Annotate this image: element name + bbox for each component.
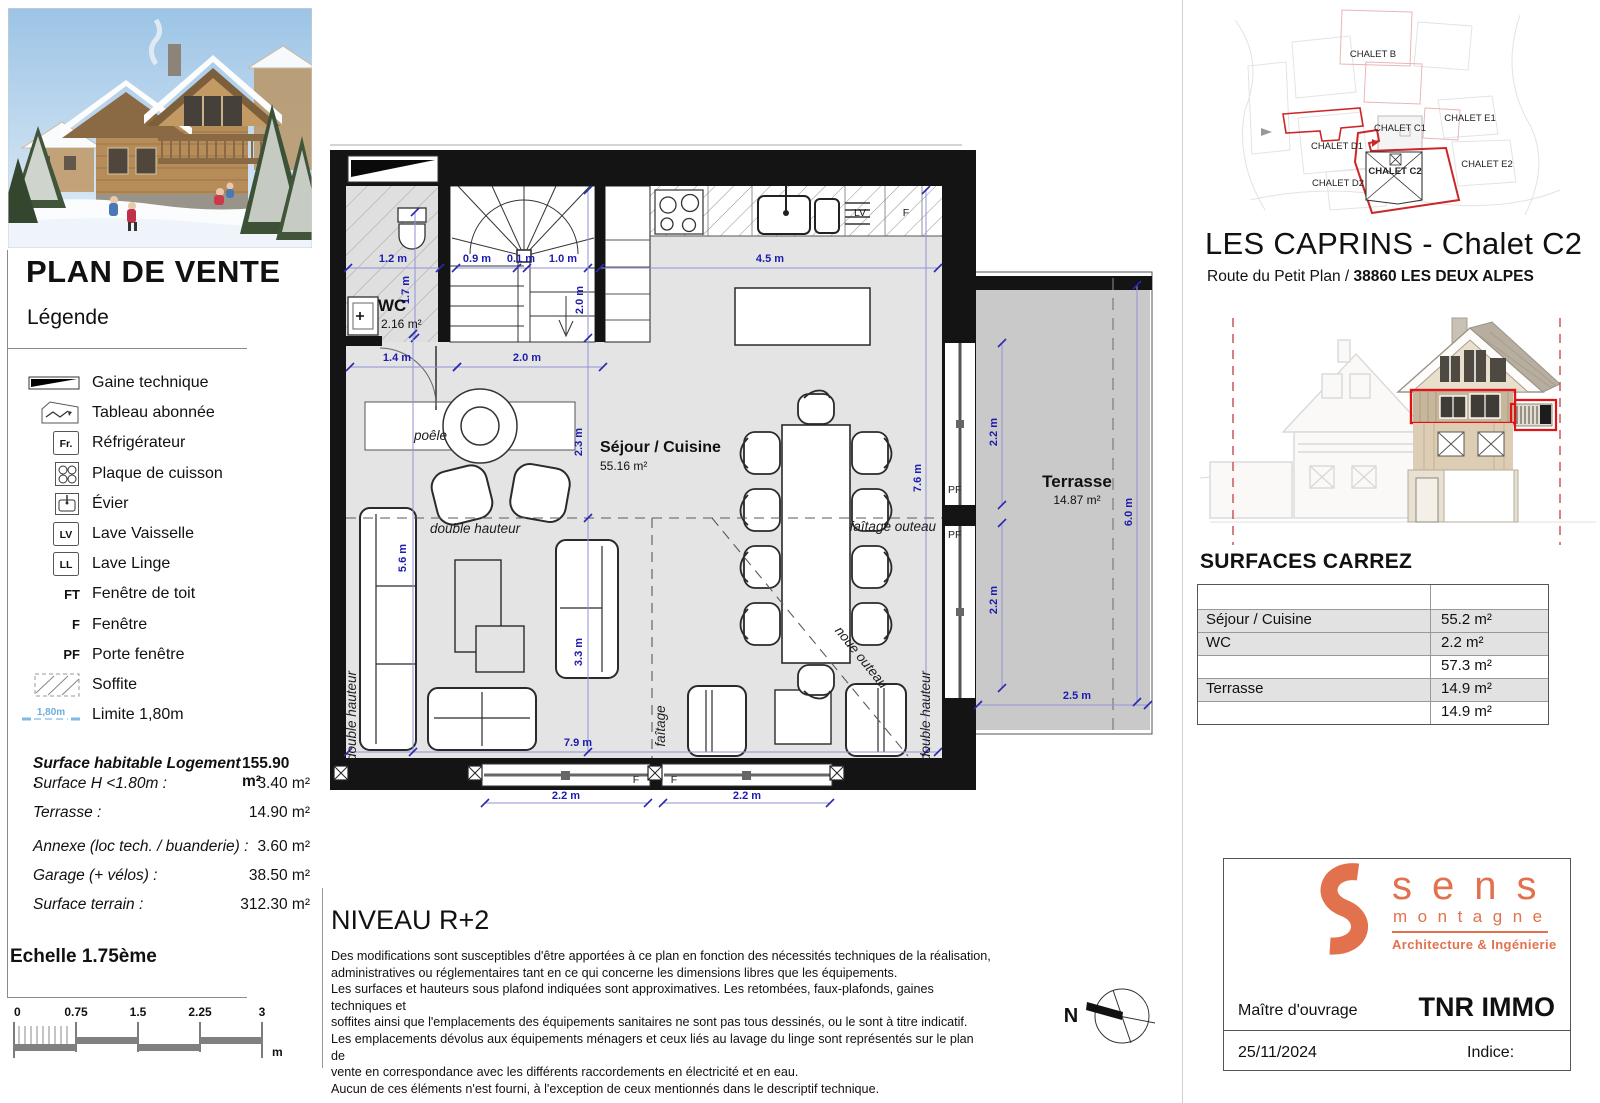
legend-item-label: Lave Linge — [92, 555, 170, 573]
scale-tick-label: 1.5 — [130, 1005, 147, 1019]
level-title: NIVEAU R+2 — [331, 905, 489, 936]
plan-annotation: LV — [854, 207, 866, 219]
legend-item-lave-linge: LLLave Linge — [0, 549, 300, 579]
dimension-label: 2.3 m — [573, 428, 585, 456]
legend-item-label: Soffite — [92, 676, 137, 694]
plan-annotation: double hauteur — [430, 521, 521, 536]
soffite-icon — [34, 673, 80, 697]
surface-value: 3.60 m² — [257, 838, 310, 856]
legend-item-label: Tableau abonnée — [92, 404, 215, 422]
carrez-room-label: Terrasse — [1198, 679, 1430, 701]
chalet-label: CHALET B — [1350, 49, 1396, 60]
room-name: Séjour / Cuisine — [600, 439, 721, 456]
compass-north-label: N — [1064, 1005, 1078, 1027]
address-city: 38860 LES DEUX ALPES — [1353, 268, 1533, 285]
legend-item-fen-tre-de-toit: FTFenêtre de toit — [0, 579, 300, 609]
floor-plan: 1.2 m0.9 m0.1 m1.0 m4.5 m1.7 m2.0 m1.4 m… — [320, 138, 1182, 830]
logo-word-montagne: montagne — [1393, 907, 1553, 927]
legend-item-label: Lave Vaisselle — [92, 525, 194, 543]
scale-tick-label: 0.75 — [64, 1005, 88, 1019]
legend-item-r-frig-rateur: Fr.Réfrigérateur — [0, 428, 300, 458]
plaque-cuisson-icon — [54, 461, 80, 487]
surface-value: 14.90 m² — [249, 804, 310, 822]
surface-value: 38.50 m² — [249, 867, 310, 885]
tableau-abonnee-icon — [40, 399, 80, 427]
owner-name: TNR IMMO — [1395, 992, 1555, 1023]
scale-bar: 00.751.52.253m — [6, 1002, 286, 1064]
svg-text:1,80m: 1,80m — [37, 707, 65, 718]
chalet-label: CHALET D1 — [1311, 141, 1363, 152]
disclaimer-line: Des modifications sont susceptibles d'êt… — [331, 948, 991, 965]
legend-item-label: Fenêtre de toit — [92, 585, 195, 603]
legend-item-soffite: Soffite — [0, 670, 300, 700]
legend-item-label: Réfrigérateur — [92, 434, 185, 452]
legend-item-label: Fenêtre — [92, 616, 147, 634]
owner-label: Maître d'ouvrage — [1238, 1002, 1358, 1020]
carrez-area-value: 14.9 m² — [1430, 679, 1548, 701]
legend-item-label: Gaine technique — [92, 374, 209, 392]
surface-row: Surface terrain :312.30 m² — [33, 896, 310, 914]
dimension-label: 2.2 m — [733, 790, 761, 802]
legend-item-label: Évier — [92, 495, 128, 513]
room-area: 55.16 m² — [600, 459, 647, 473]
legend-item-label: Limite 1,80m — [92, 706, 184, 724]
carrez-row: WC2.2 m² — [1198, 632, 1548, 655]
dimension-label: 4.5 m — [756, 253, 784, 265]
disclaimer-line: soffites ainsi que l'emplacements des éq… — [331, 1014, 991, 1031]
carrez-row: 57.3 m² — [1198, 655, 1548, 678]
gaine-technique-icon — [28, 371, 80, 395]
scale-tick-label: 0 — [14, 1005, 21, 1019]
date-value: 25/11/2024 — [1238, 1044, 1317, 1062]
north-compass: N — [1030, 970, 1180, 1065]
surface-value: 312.30 m² — [240, 896, 310, 914]
legend-item-tableau-abonn-e: Tableau abonnée — [0, 398, 300, 428]
project-address: Route du Petit Plan / 38860 LES DEUX ALP… — [1207, 268, 1534, 286]
logo-tagline: Architecture & Ingénierie — [1392, 937, 1557, 952]
carrez-room-label — [1198, 702, 1430, 724]
plan-disclaimer: Des modifications sont susceptibles d'êt… — [331, 948, 991, 1097]
scale-title: Echelle 1.75ème — [10, 946, 157, 968]
carrez-area-value: 57.3 m² — [1430, 656, 1548, 678]
plan-annotation: PF — [948, 529, 961, 541]
f-symbol: F — [72, 617, 80, 632]
legend-item-gaine-technique: Gaine technique — [0, 368, 300, 398]
carrez-row: 14.9 m² — [1198, 701, 1548, 724]
dimension-label: 1.4 m — [383, 352, 411, 364]
room-name: WC — [378, 296, 406, 315]
legend-list: Gaine techniqueTableau abonnéeFr.Réfrigé… — [0, 368, 310, 738]
legend-item-limite-1-80m: 1,80mLimite 1,80m — [0, 700, 300, 730]
carrez-area-value: 14.9 m² — [1430, 702, 1548, 724]
elevation-drawing — [1200, 312, 1596, 548]
chalet-label: CHALET C2 — [1368, 166, 1421, 177]
surface-value: 3.40 m² — [257, 775, 310, 793]
carrez-room-label — [1198, 656, 1430, 678]
disclaimer-line: Les emplacements dévolus aux équipements… — [331, 1031, 991, 1064]
carrez-room-label: Séjour / Cuisine — [1198, 610, 1430, 632]
legend-item-label: Porte fenêtre — [92, 646, 185, 664]
svg-text:LL: LL — [60, 559, 73, 571]
project-title: LES CAPRINS - Chalet C2 — [1205, 226, 1582, 262]
dimension-label: 7.6 m — [912, 464, 924, 492]
legend-item-plaque-de-cuisson: Plaque de cuisson — [0, 459, 300, 489]
dimension-label: 2.2 m — [552, 790, 580, 802]
legend-item-lave-vaisselle: LVLave Vaisselle — [0, 519, 300, 549]
carrez-area-value: 55.2 m² — [1430, 610, 1548, 632]
carrez-room-label: WC — [1198, 633, 1430, 655]
surface-label: Garage (+ vélos) : — [33, 867, 157, 885]
sens-montagne-logo — [1300, 860, 1390, 955]
disclaimer-line: vente en correspondance avec les différe… — [331, 1064, 991, 1081]
chalet-label: CHALET D2 — [1312, 178, 1364, 189]
surface-row: Annexe (loc tech. / buanderie) :3.60 m² — [33, 838, 310, 856]
logo-word-sens: sens — [1392, 864, 1557, 909]
dimension-label: 1.2 m — [379, 253, 407, 265]
chalet-label: CHALET E1 — [1444, 113, 1496, 124]
fr-box-icon: Fr. — [52, 430, 80, 456]
plan-annotation: F — [633, 774, 639, 786]
chalet-label: CHALET C1 — [1374, 123, 1426, 134]
scale-tick-label: 2.25 — [188, 1005, 212, 1019]
plan-annotation: faîtage — [653, 705, 668, 746]
plan-de-vente-sheet: PLAN DE VENTE Légende Gaine techniqueTab… — [0, 0, 1600, 1103]
room-area: 14.87 m² — [1053, 493, 1100, 507]
dimension-label: 2.0 m — [574, 286, 586, 314]
disclaimer-line: administratives ou réglementaires tant e… — [331, 965, 991, 982]
plan-annotation: F — [671, 774, 677, 786]
logo-rule — [1392, 931, 1548, 933]
surface-row: Terrasse :14.90 m² — [33, 804, 310, 822]
limite-180-icon: 1,80m — [22, 704, 80, 726]
legend-item-porte-fen-tre: PFPorte fenêtre — [0, 640, 300, 670]
scale-unit: m — [272, 1045, 283, 1059]
pf-symbol: PF — [63, 647, 80, 662]
site-plan: CHALET BCHALET C1CHALET E1CHALET D1CHALE… — [1190, 5, 1596, 223]
dimension-label: 3.3 m — [573, 638, 585, 666]
ll-box-icon: LL — [52, 551, 80, 577]
dimension-label: 2.5 m — [1063, 690, 1091, 702]
surface-label: Surface H <1.80m : — [33, 775, 167, 793]
legend-item--vier: Évier — [0, 489, 300, 519]
scale-tick-label: 3 — [259, 1005, 266, 1019]
disclaimer-line: Aucun de ces éléments n'est fourni, à l'… — [331, 1081, 991, 1098]
room-name: Terrasse — [1042, 472, 1112, 491]
dimension-label: 6.0 m — [1123, 498, 1135, 526]
surface-label: Surface terrain : — [33, 896, 143, 914]
dimension-label: 2.0 m — [513, 352, 541, 364]
carrez-row: Séjour / Cuisine55.2 m² — [1198, 609, 1548, 632]
plan-annotation: F — [903, 207, 909, 219]
dimension-label: 7.9 m — [564, 737, 592, 749]
evier-icon — [54, 492, 80, 516]
surface-row: Surface H <1.80m :3.40 m² — [33, 775, 310, 793]
ft-symbol: FT — [64, 587, 80, 602]
dimension-label: 2.2 m — [988, 586, 1000, 614]
carrez-area-value: 2.2 m² — [1430, 633, 1548, 655]
carrez-room-label — [1198, 585, 1430, 609]
legend-item-fen-tre: FFenêtre — [0, 610, 300, 640]
surface-label: Terrasse : — [33, 804, 101, 822]
plan-annotation: faîtage outeau — [850, 519, 937, 534]
disclaimer-line: Les surfaces et hauteurs sous plafond in… — [331, 981, 991, 1014]
lv-box-icon: LV — [52, 521, 80, 547]
title-block-divider — [1223, 1030, 1571, 1031]
document-title: PLAN DE VENTE — [26, 254, 281, 290]
dimension-label: 0.1 m — [507, 253, 535, 265]
carrez-row: Terrasse14.9 m² — [1198, 678, 1548, 701]
plan-annotation: double hauteur — [918, 670, 933, 761]
address-street: Route du Petit Plan / — [1207, 268, 1353, 285]
plan-annotation: poêle — [413, 428, 447, 443]
legend-title: Légende — [27, 306, 109, 330]
chalet-photo — [8, 8, 312, 248]
dimension-label: 1.0 m — [549, 253, 577, 265]
plan-annotation: double hauteur — [344, 670, 359, 761]
surfaces-carrez-table: Séjour / Cuisine55.2 m²WC2.2 m²57.3 m²Te… — [1197, 584, 1549, 725]
surface-label: Annexe (loc tech. / buanderie) : — [33, 838, 248, 856]
room-area: 2.16 m² — [381, 317, 422, 331]
chalet-label: CHALET E2 — [1461, 159, 1513, 170]
surfaces-carrez-heading: SURFACES CARREZ — [1200, 550, 1412, 574]
dimension-label: 0.9 m — [463, 253, 491, 265]
plan-annotation: PF — [948, 484, 961, 496]
dimension-label: 2.2 m — [988, 418, 1000, 446]
dimension-label: 5.6 m — [397, 544, 409, 572]
indice-label: Indice: — [1467, 1044, 1514, 1062]
carrez-area-value — [1430, 585, 1548, 609]
surface-row: Garage (+ vélos) :38.50 m² — [33, 867, 310, 885]
svg-text:Fr.: Fr. — [60, 438, 73, 450]
carrez-row — [1198, 585, 1548, 609]
svg-text:LV: LV — [60, 529, 73, 541]
legend-item-label: Plaque de cuisson — [92, 465, 223, 483]
